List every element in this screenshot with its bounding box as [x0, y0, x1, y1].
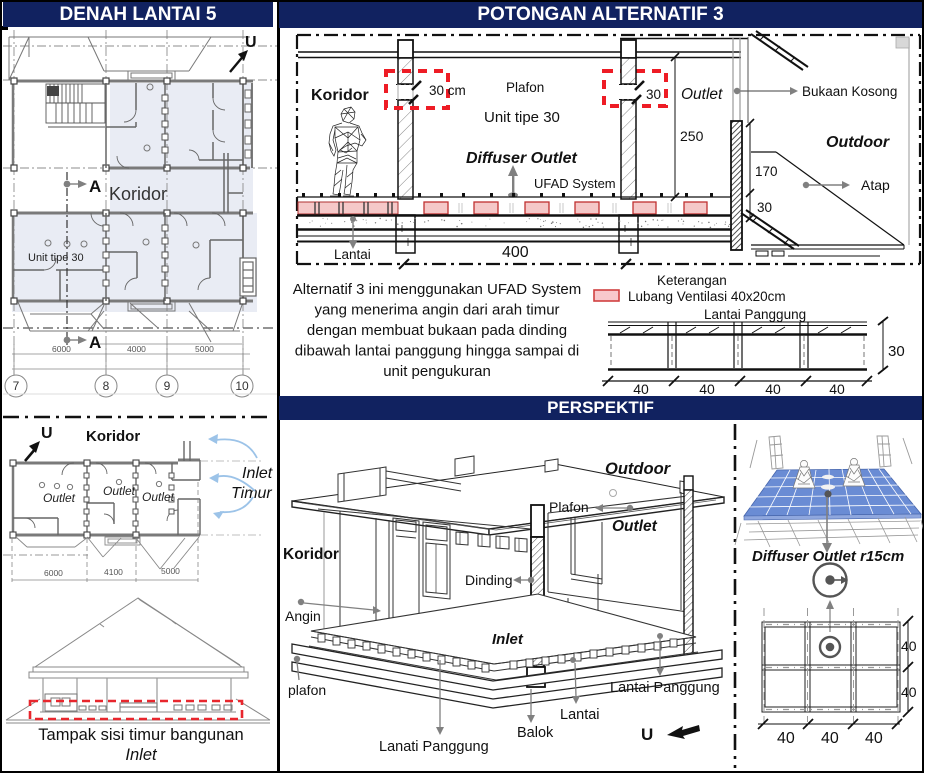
svg-text:UFAD System: UFAD System [534, 176, 616, 191]
svg-text:Unit tipe 30: Unit tipe 30 [484, 109, 560, 126]
svg-text:Outlet: Outlet [103, 484, 136, 498]
svg-text:Dinding: Dinding [465, 572, 512, 588]
svg-text:Lantai Panggung: Lantai Panggung [704, 307, 806, 322]
svg-text:170: 170 [755, 164, 778, 179]
svg-text:Inlet: Inlet [242, 465, 273, 482]
svg-text:U: U [41, 425, 53, 442]
svg-text:Tampak sisi timur bangunan: Tampak sisi timur bangunan [38, 726, 243, 744]
svg-text:Alternatif 3 ini menggunakan U: Alternatif 3 ini menggunakan UFAD System [293, 281, 581, 298]
svg-text:40: 40 [699, 381, 715, 396]
svg-text:30: 30 [757, 200, 772, 215]
svg-text:Outlet: Outlet [43, 491, 76, 505]
svg-text:Outlet: Outlet [681, 86, 723, 103]
svg-text:Unit tipe 30: Unit tipe 30 [28, 252, 84, 264]
svg-text:40: 40 [901, 638, 917, 654]
svg-text:6000: 6000 [52, 344, 71, 354]
svg-text:4100: 4100 [104, 567, 123, 577]
svg-text:Inlet: Inlet [125, 746, 158, 764]
svg-text:40: 40 [765, 381, 781, 396]
svg-text:Atap: Atap [861, 177, 890, 193]
svg-text:Lantai Panggung: Lantai Panggung [610, 680, 720, 696]
svg-text:Angin: Angin [285, 608, 321, 624]
svg-text:5000: 5000 [161, 566, 180, 576]
svg-text:Outdoor: Outdoor [605, 460, 672, 478]
svg-text:Bukaan Kosong: Bukaan Kosong [802, 84, 897, 99]
svg-text:Lubang Ventilasi 40x20cm: Lubang Ventilasi 40x20cm [628, 289, 786, 304]
svg-text:Balok: Balok [517, 725, 554, 741]
svg-text:Outlet: Outlet [612, 518, 658, 535]
svg-text:yang menerima angin dari arah: yang menerima angin dari arah timur [314, 302, 559, 319]
svg-text:Outlet: Outlet [142, 490, 175, 504]
svg-text:40: 40 [829, 381, 845, 396]
svg-text:Lantai: Lantai [560, 707, 600, 723]
svg-text:Lantai: Lantai [334, 247, 371, 262]
svg-text:Plafon: Plafon [506, 80, 544, 95]
svg-text:5000: 5000 [195, 344, 214, 354]
svg-text:dengan membuat bukaan pada din: dengan membuat bukaan pada dinding [307, 322, 567, 339]
svg-text:A: A [89, 333, 101, 352]
svg-text:7: 7 [13, 379, 20, 393]
svg-text:unit pengukuran: unit pengukuran [383, 363, 491, 380]
svg-text:Koridor: Koridor [311, 87, 369, 104]
svg-text:30 cm: 30 cm [429, 83, 466, 98]
svg-text:40: 40 [633, 381, 649, 396]
svg-text:40: 40 [821, 730, 839, 747]
svg-text:A: A [89, 177, 101, 196]
svg-text:Keterangan: Keterangan [657, 273, 727, 288]
svg-text:10: 10 [235, 379, 249, 393]
svg-text:Koridor: Koridor [86, 428, 140, 445]
svg-text:dibawah lantai panggung hingg: dibawah lantai panggung hingga sampai di [295, 343, 579, 360]
svg-text:30: 30 [646, 87, 661, 102]
svg-text:6000: 6000 [44, 568, 63, 578]
svg-text:Diffuser Outlet: Diffuser Outlet [466, 150, 578, 167]
svg-text:plafon: plafon [288, 682, 326, 698]
svg-text:40: 40 [865, 730, 883, 747]
svg-text:Inlet: Inlet [492, 631, 524, 648]
svg-text:40: 40 [901, 684, 917, 700]
svg-text:Koridor: Koridor [283, 546, 339, 563]
svg-text:250: 250 [680, 128, 704, 144]
svg-text:9: 9 [164, 379, 171, 393]
svg-text:U: U [245, 34, 257, 51]
svg-text:4000: 4000 [127, 344, 146, 354]
svg-text:40: 40 [777, 730, 795, 747]
svg-text:8: 8 [103, 379, 110, 393]
svg-text:U: U [641, 725, 653, 744]
svg-text:30: 30 [888, 343, 905, 360]
svg-text:Lanati Panggung: Lanati Panggung [379, 739, 489, 755]
svg-text:400: 400 [502, 244, 529, 261]
svg-text:Plafon: Plafon [549, 499, 589, 515]
svg-text:Koridor: Koridor [109, 184, 167, 204]
svg-text:Outdoor: Outdoor [826, 134, 890, 151]
